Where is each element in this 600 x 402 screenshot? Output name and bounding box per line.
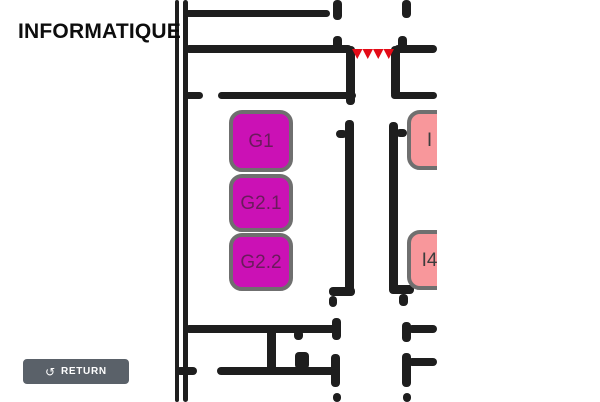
return-button-label: RETURN [61,366,107,377]
wall-segment [294,330,303,340]
wall-segment [333,36,342,49]
wall-segment [329,287,355,296]
wall-segment [183,0,188,402]
room-I[interactable]: I [407,110,437,170]
wall-segment [185,92,203,99]
wall-segment [396,129,407,137]
wall-segment [403,393,411,402]
wall-segment [333,393,341,402]
wall-segment [399,294,408,306]
room-G2.1[interactable]: G2.1 [229,174,293,232]
room-label: I4 [422,251,437,270]
room-label: I [427,131,432,150]
wall-segment [185,10,330,17]
wall-segment [176,367,197,375]
wall-segment [217,367,337,375]
return-icon: ↺ [45,366,56,378]
wall-segment [389,122,398,292]
wall-segment [345,120,354,296]
stairs-marker-path [352,49,394,59]
wall-segment [402,0,411,18]
return-button[interactable]: ↺ RETURN [23,359,129,384]
wall-segment [185,325,337,333]
wall-segment [332,318,341,340]
room-label: G2.1 [240,194,281,213]
wall-segment [408,358,437,366]
floorplan-map: G1G2.1G2.2II4 [0,0,437,402]
wall-segment [185,45,352,53]
wall-segment [331,354,340,387]
wall-segment [391,92,437,99]
room-label: G2.2 [240,253,281,272]
wall-segment [408,325,437,333]
room-G1[interactable]: G1 [229,110,293,172]
wall-segment [336,130,347,138]
wall-segment [295,352,309,369]
wall-segment [175,0,179,402]
stairs-marker [352,49,394,59]
page-title: INFORMATIQUE [18,20,181,44]
wall-segment [333,0,342,20]
room-label: G1 [248,132,273,151]
wall-segment [329,296,337,307]
wall-segment [267,328,276,373]
wall-segment [218,92,356,99]
room-I4[interactable]: I4 [407,230,437,290]
room-G2.2[interactable]: G2.2 [229,233,293,291]
